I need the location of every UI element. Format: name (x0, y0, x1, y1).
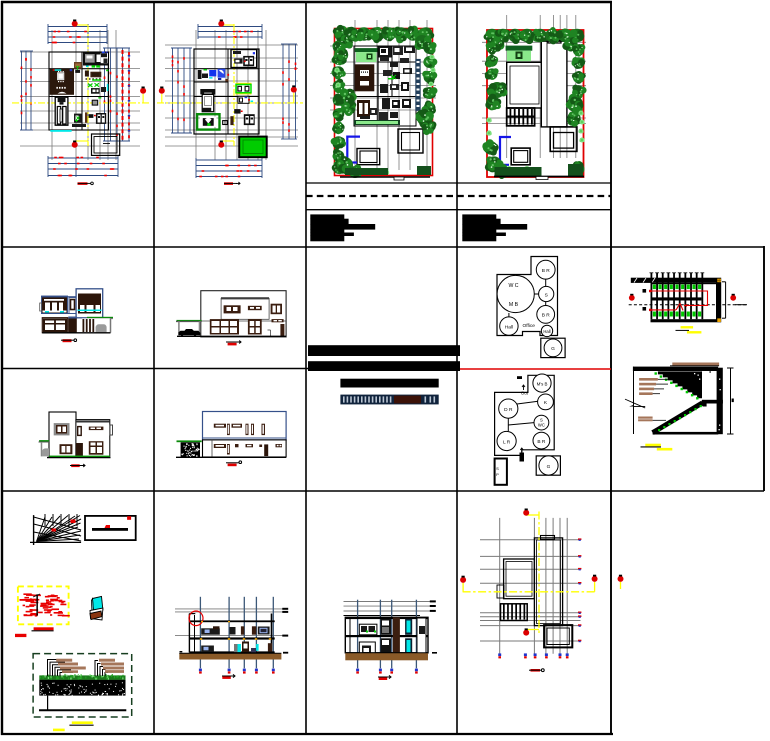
svg-text:L R: L R (503, 439, 511, 445)
svg-text:B R: B R (537, 439, 546, 445)
svg-text:S: S (545, 292, 548, 298)
svg-text:D R: D R (504, 407, 513, 413)
svg-text:Office: Office (522, 323, 535, 329)
svg-text:P: P (496, 472, 499, 477)
svg-text:Out: Out (521, 391, 529, 396)
svg-text:M's B: M's B (537, 381, 548, 386)
svg-text:G: G (551, 346, 555, 352)
svg-text:M B: M B (509, 302, 519, 308)
svg-text:Hall: Hall (543, 329, 550, 334)
svg-text:W C: W C (508, 283, 518, 289)
svg-text:WC: WC (538, 423, 545, 428)
svg-text:B R: B R (542, 313, 551, 319)
svg-text:G: G (547, 464, 551, 470)
svg-text:Hall: Hall (505, 324, 513, 330)
svg-text:B R: B R (542, 268, 551, 274)
svg-text:S: S (496, 466, 499, 471)
